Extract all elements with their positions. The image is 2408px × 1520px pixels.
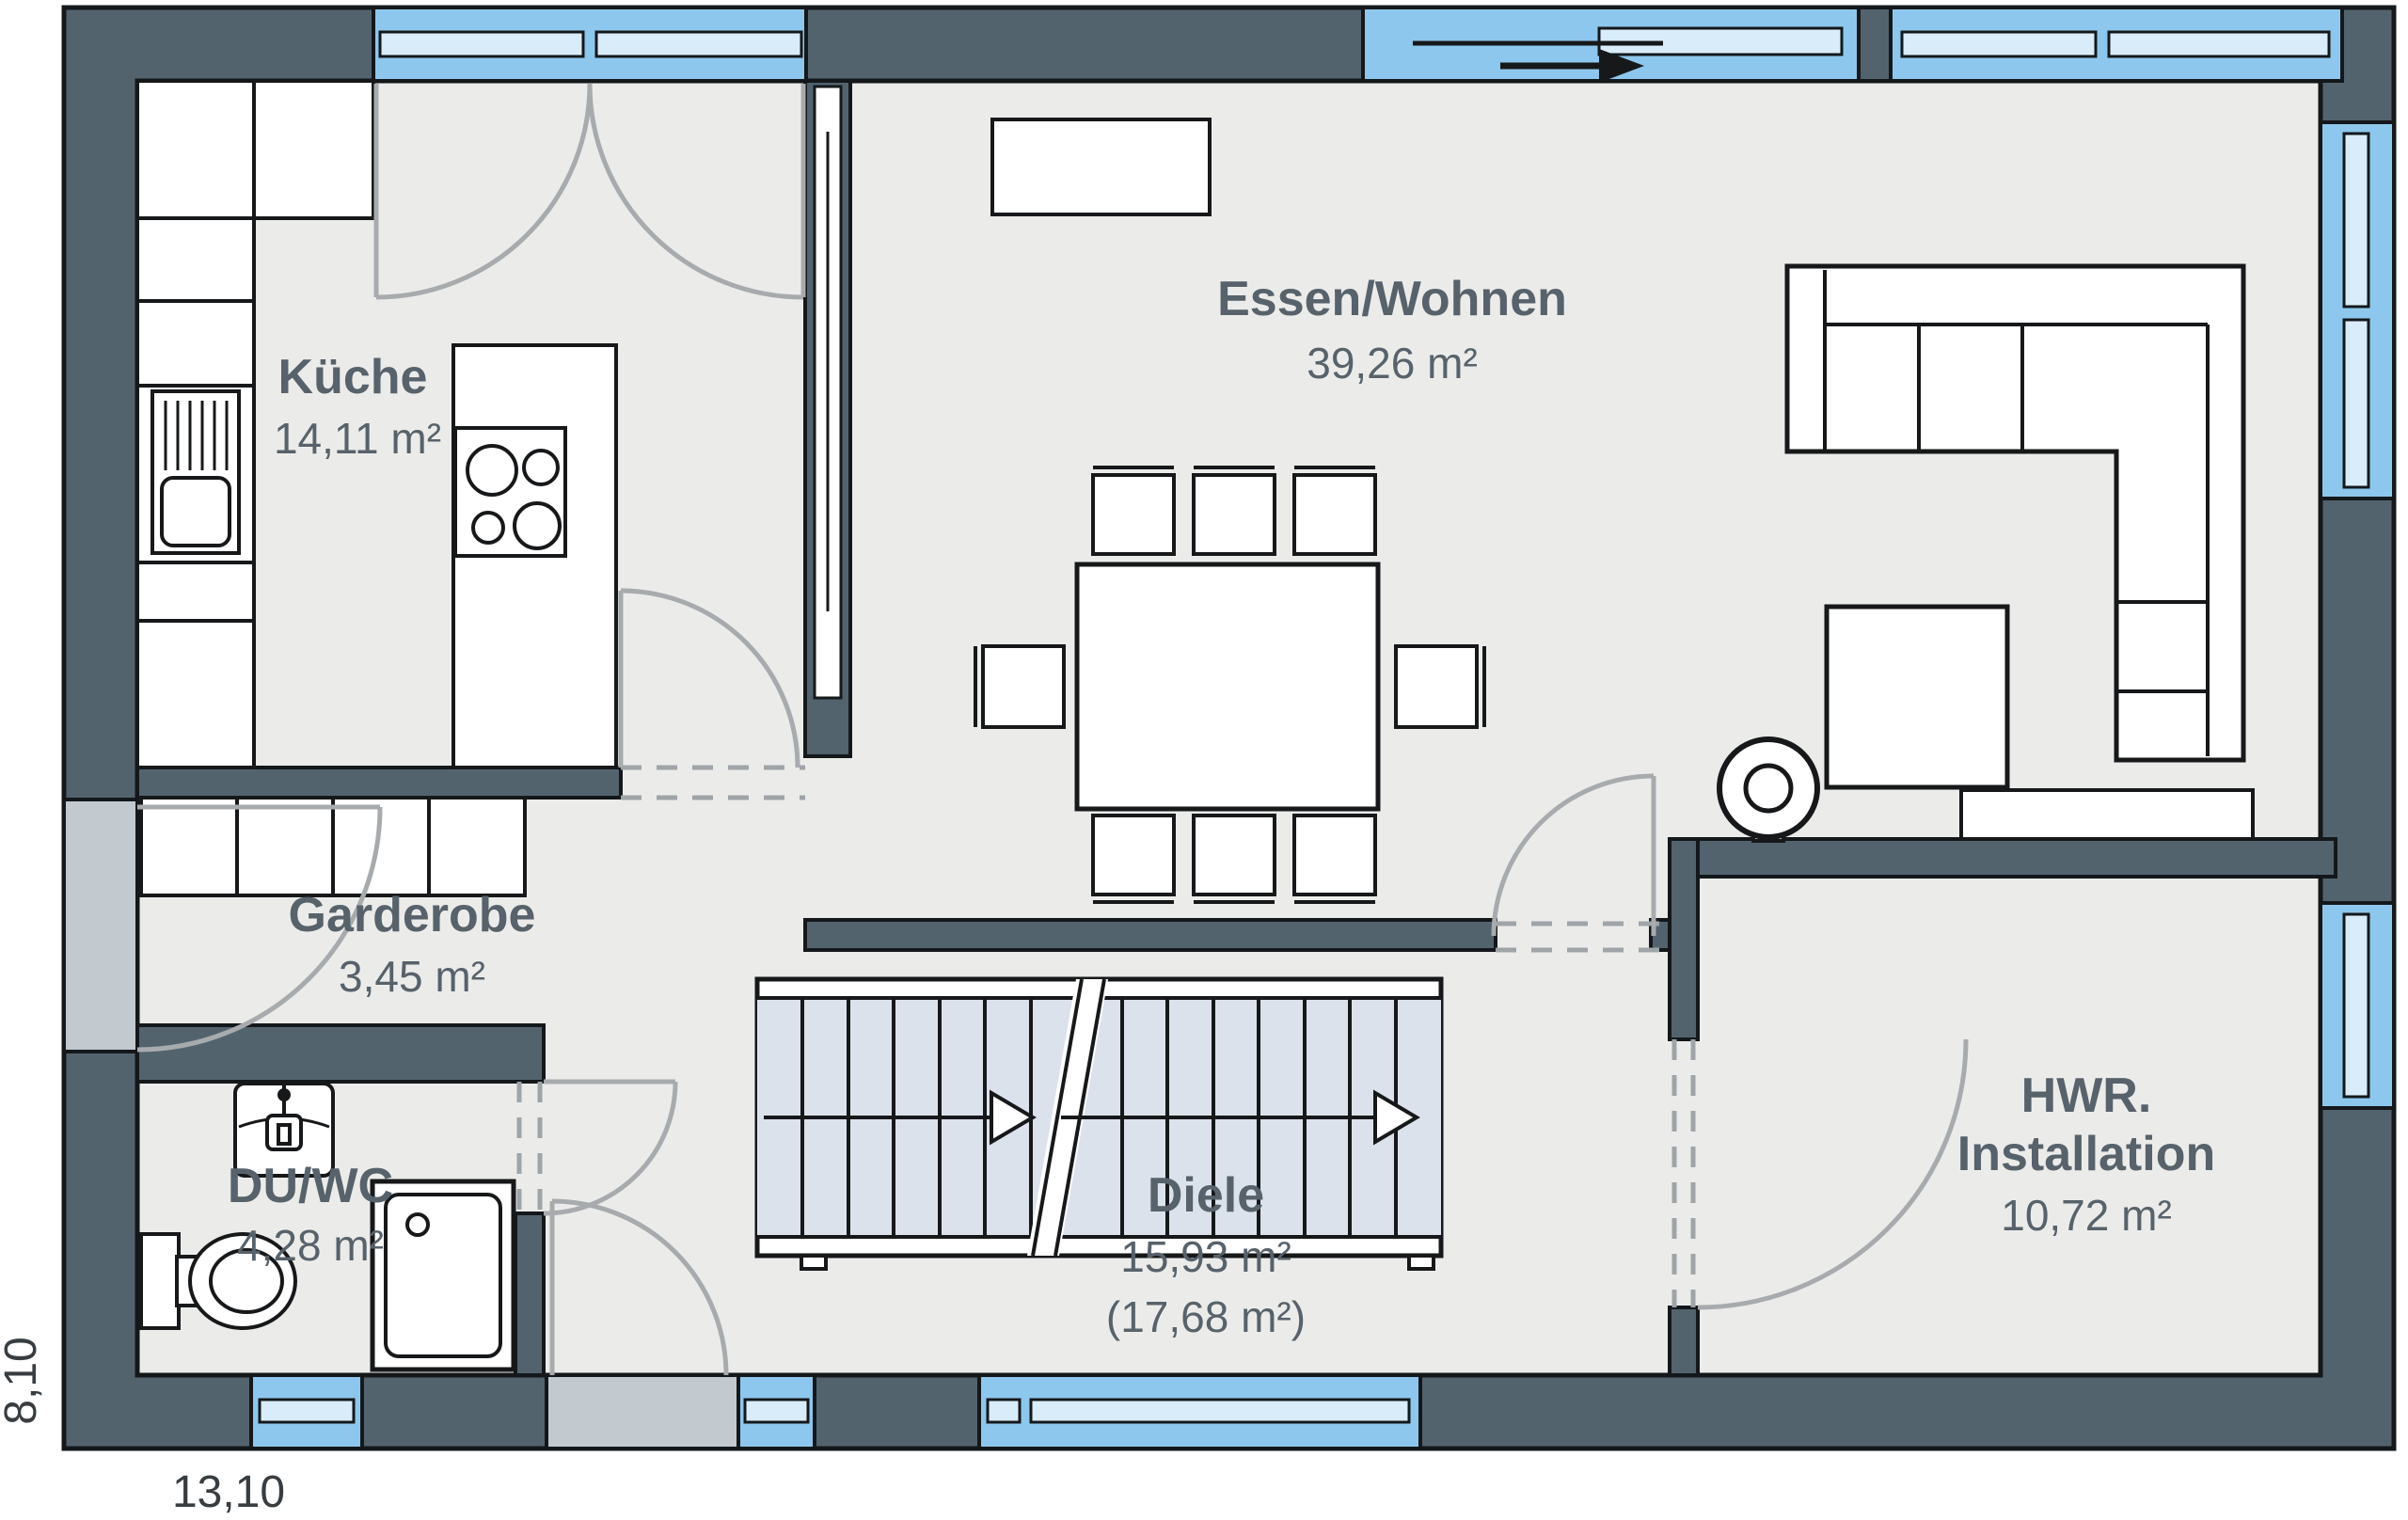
floor-plan-svg: Küche 14,11 m² Essen/Wohnen 39,26 m² Gar… [0,0,2408,1520]
kitchen-hall-wall [137,768,621,798]
room-label-hwr: HWR. [2021,1069,2152,1123]
coffee-table-icon [1827,607,2007,787]
window-duwc-bottom [251,1375,362,1449]
duwc-right-wall [515,1213,544,1375]
window-kitchen-top [373,8,806,81]
room-area-diele: 15,93 m² [1120,1232,1291,1281]
room-area-kueche: 14,11 m² [274,414,441,463]
window-pane [1031,1400,1409,1422]
window-hwr-right [2321,903,2394,1108]
wood-stove-icon [1719,739,1817,841]
room-label-kueche: Küche [278,350,428,404]
dining-table-icon [1077,564,1378,809]
room-label-garderobe: Garderobe [289,888,536,942]
living-hwr-wall [1670,839,2336,877]
sideboard-top [992,119,1210,214]
room-area-duwc: 4,28 m² [237,1221,384,1270]
window-living-top [1891,8,2342,81]
room-label-duwc: DU/WC [228,1159,393,1213]
stair-foot [1409,1256,1434,1269]
window-living-right [2321,122,2394,499]
window-diele-long-bottom [979,1375,1420,1449]
garderobe-duwc-wall [137,1025,544,1082]
room-area-hwr: 10,72 m² [2001,1191,2172,1240]
window-mullion-pillar [1859,8,1891,81]
hwr-left-wall-upper [1670,839,1698,1039]
shower-icon [372,1181,514,1370]
cooktop-icon [455,428,565,556]
entry-door-bottom [547,1375,738,1449]
room-area-essen-wohnen: 39,26 m² [1307,339,1478,388]
room-area-garderobe: 3,45 m² [339,952,485,1001]
window-pane [380,32,583,56]
hwr-left-wall-lower [1670,1307,1698,1375]
entry-door-left [64,800,137,1052]
wardrobe-icon [141,798,525,895]
window-pane [2344,914,2368,1097]
window-pane [2109,32,2329,56]
sideboard-hwr-wall [1961,790,2253,839]
stair-foot [801,1256,826,1269]
room-label-essen-wohnen: Essen/Wohnen [1217,272,1567,326]
window-sliding-terrace [1363,8,1859,83]
window-pane [1902,32,2096,56]
room-label-diele: Diele [1148,1168,1264,1223]
window-pane [745,1400,808,1422]
window-pane [596,32,801,56]
dimension-width: 13,10 [172,1467,285,1517]
dimension-height: 8,10 [0,1337,46,1424]
room-area-diele-gross: (17,68 m²) [1106,1292,1306,1341]
window-pane [2344,134,2368,307]
window-diele-small-bottom [738,1375,815,1449]
room-label-hwr-line2: Installation [1957,1127,2215,1181]
stair-wall [805,920,1496,950]
kitchen-sink-icon [152,391,239,553]
floor-plan: Küche 14,11 m² Essen/Wohnen 39,26 m² Gar… [0,0,2408,1520]
window-pane [988,1400,1020,1422]
staircase [757,979,1441,1269]
window-pane [2344,320,2368,487]
window-pane [260,1400,354,1422]
